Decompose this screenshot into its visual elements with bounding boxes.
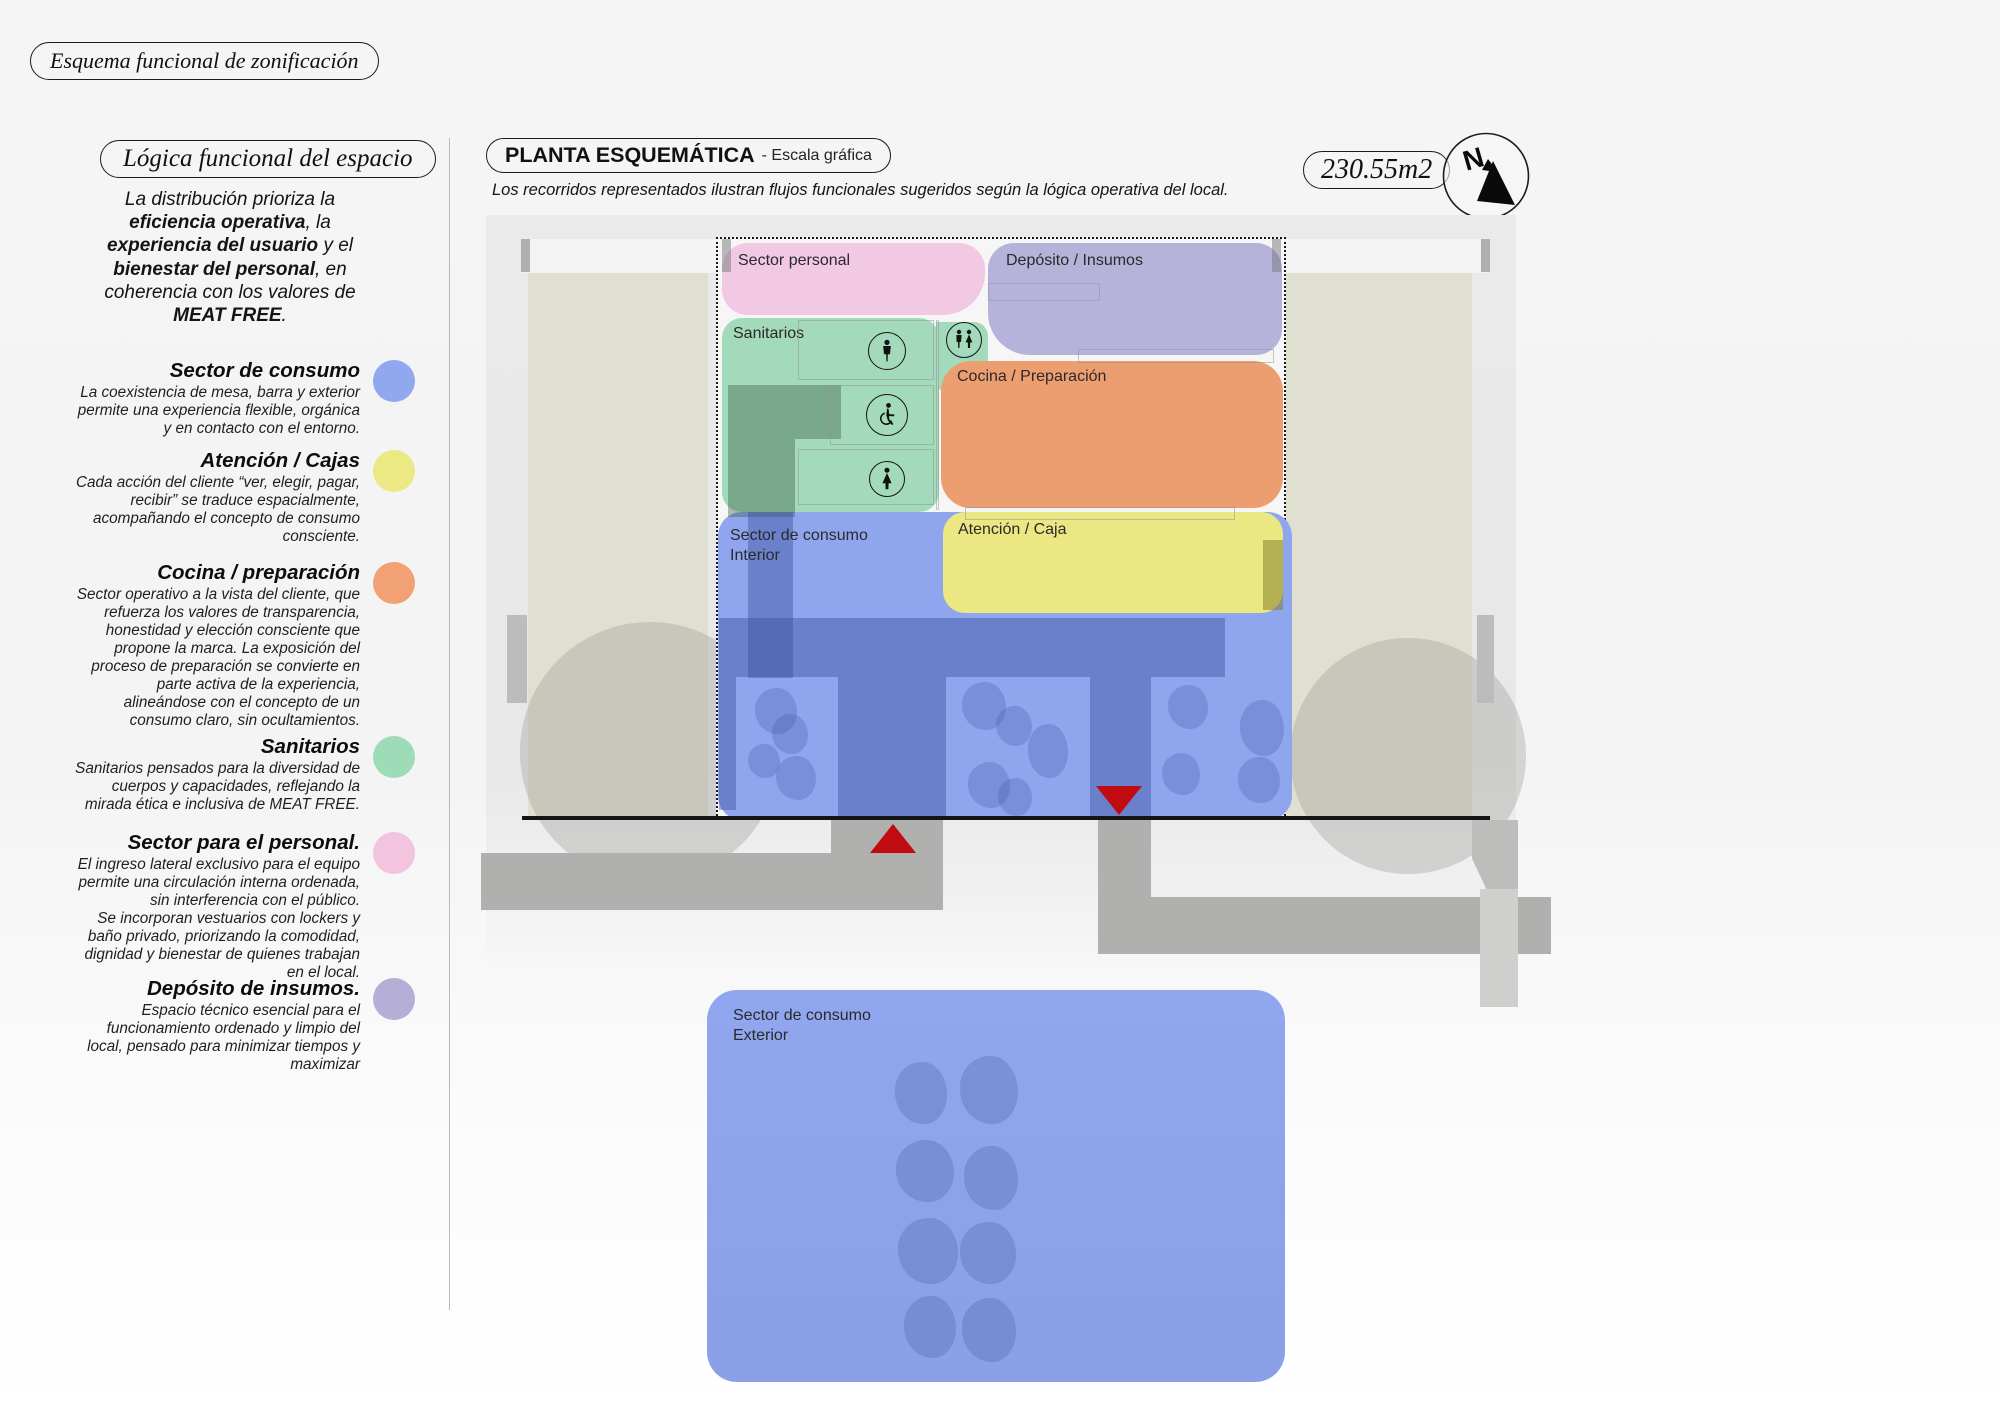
legend-title: Depósito de insumos.	[74, 978, 360, 1000]
facade-line	[522, 816, 1490, 820]
zone-label-personal: Sector personal	[738, 251, 985, 271]
legend-title: Sector para el personal.	[74, 832, 360, 854]
zone-label-consumo-exterior: Sector de consumo Exterior	[733, 1006, 1285, 1046]
facade-tab	[521, 239, 530, 272]
intro-line: y el	[318, 235, 353, 256]
intro-line: La distribución prioriza la	[125, 189, 335, 210]
intro-bold: experiencia del usuario	[107, 235, 318, 256]
legend-item-deposito: Depósito de insumos. Espacio técnico ese…	[74, 978, 415, 1074]
legend-desc: El ingreso lateral exclusivo para el equ…	[74, 856, 360, 982]
legend-item-sanitarios: Sanitarios Sanitarios pensados para la d…	[74, 736, 415, 814]
zone-label-cocina: Cocina / Preparación	[957, 367, 1283, 387]
legend-color-dot	[373, 450, 415, 492]
flow-band	[719, 618, 1225, 677]
tree-blob	[998, 778, 1032, 816]
legend-item-cocina: Cocina / preparación Sector operativo a …	[74, 562, 415, 730]
legend-item-atencion: Atención / Cajas Cada acción del cliente…	[74, 450, 415, 546]
tree-blob	[895, 1062, 947, 1124]
legend-title: Atención / Cajas	[74, 450, 360, 472]
counter-column-overlay	[1263, 540, 1283, 610]
intro-line: , en	[315, 259, 347, 280]
zone-sector-personal: Sector personal	[722, 243, 985, 315]
legend-desc: Sector operativo a la vista del cliente,…	[74, 586, 360, 730]
flow-stem-entry	[838, 677, 946, 818]
tree-blob	[904, 1296, 956, 1358]
intro-line: , la	[306, 212, 331, 233]
legend-desc: La coexistencia de mesa, barra y exterio…	[74, 384, 360, 438]
pilaster-left	[507, 615, 527, 703]
legend-desc: Cada acción del cliente “ver, elegir, pa…	[74, 474, 360, 546]
facade-tab	[1272, 239, 1281, 272]
tree-blob	[964, 1146, 1018, 1210]
facade-tab	[722, 239, 731, 272]
legend-color-dot	[373, 832, 415, 874]
wall-outline	[1078, 349, 1274, 363]
zone-label-consumo-interior: Sector de consumo Interior	[730, 526, 868, 566]
area-badge: 230.55m2	[1303, 151, 1450, 189]
zoning-scheme-page: Esquema funcional de zonificación Lógica…	[0, 0, 2000, 1414]
zone-cocina: Cocina / Preparación	[941, 361, 1283, 508]
flow-left-margin	[719, 677, 736, 810]
wall-outline	[830, 385, 934, 445]
plan-title-badge: PLANTA ESQUEMÁTICA - Escala gráfica	[486, 138, 891, 173]
intro-bold: bienestar del personal	[113, 259, 315, 280]
legend-color-dot	[373, 562, 415, 604]
page-tag-label: Esquema funcional de zonificación	[50, 48, 359, 74]
tree-blob	[896, 1140, 954, 1202]
intro-bold: eficiencia operativa	[129, 212, 305, 233]
pilaster-right	[1477, 615, 1494, 703]
intro-line: .	[282, 305, 287, 326]
sidebar-title: Lógica funcional del espacio	[123, 145, 413, 173]
legend-color-dot	[373, 360, 415, 402]
legend-title: Cocina / preparación	[74, 562, 360, 584]
entry-arrow-icon	[870, 824, 916, 853]
tree-blob	[960, 1222, 1016, 1284]
legend-desc: Espacio técnico esencial para el funcion…	[74, 1002, 360, 1074]
page-tag-badge: Esquema funcional de zonificación	[30, 42, 379, 80]
zone-atencion-caja: Atención / Caja	[943, 512, 1283, 613]
zone-label-deposito: Depósito / Insumos	[1006, 251, 1282, 271]
tree-blob	[1238, 757, 1280, 803]
tree-blob	[776, 756, 816, 800]
tree-blob	[898, 1218, 958, 1284]
family-restroom-icon	[946, 322, 982, 358]
tree-blob	[1162, 753, 1200, 795]
intro-line: coherencia con los valores de	[104, 282, 355, 303]
staff-area-overlay-a	[728, 385, 841, 439]
zone-label-atencion: Atención / Caja	[958, 520, 1283, 540]
staff-area-overlay-b	[728, 439, 795, 517]
legend-desc: Sanitarios pensados para la diversidad d…	[74, 760, 360, 814]
wall-outline	[988, 283, 1100, 301]
tree-blob	[1168, 685, 1208, 729]
sidebar-intro: La distribución prioriza la eficiencia o…	[94, 188, 366, 327]
area-value: 230.55m2	[1321, 154, 1432, 186]
wall-outline	[798, 320, 934, 380]
plan-title-suffix: - Escala gráfica	[762, 147, 872, 165]
legend-title: Sanitarios	[74, 736, 360, 758]
sidewalk-strip-right	[1480, 889, 1518, 1007]
legend-item-personal: Sector para el personal. El ingreso late…	[74, 832, 415, 982]
north-arrow-icon: N	[1442, 132, 1530, 220]
legend-color-dot	[373, 736, 415, 778]
tree-blob	[996, 706, 1032, 746]
tree-blob	[1028, 724, 1068, 778]
legend-title: Sector de consumo	[74, 360, 360, 382]
tree-blob	[772, 714, 808, 754]
sidebar-divider	[449, 138, 450, 1310]
wall-outline	[965, 507, 1235, 520]
sidebar-title-badge: Lógica funcional del espacio	[100, 140, 436, 178]
tree-blob	[1240, 700, 1284, 756]
facade-tab	[1481, 239, 1490, 272]
wall-outline	[936, 320, 939, 510]
legend-color-dot	[373, 978, 415, 1020]
plan-note: Los recorridos representados ilustran fl…	[492, 181, 1229, 200]
tree-blob	[960, 1056, 1018, 1124]
wall-outline	[798, 449, 934, 505]
tree-blob	[962, 1298, 1016, 1362]
legend-item-consumo: Sector de consumo La coexistencia de mes…	[74, 360, 415, 438]
exit-arrow-icon	[1096, 786, 1142, 815]
plan-title: PLANTA ESQUEMÁTICA	[505, 143, 755, 168]
intro-bold: MEAT FREE	[173, 305, 281, 326]
